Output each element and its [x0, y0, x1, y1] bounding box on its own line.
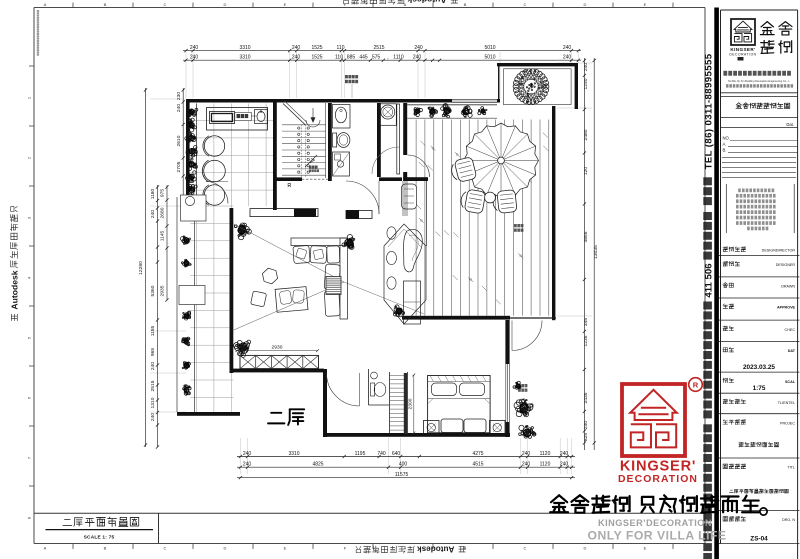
svg-text:240: 240 — [292, 55, 301, 61]
svg-text:13035: 13035 — [593, 245, 599, 259]
svg-text:411 506: 411 506 — [703, 263, 714, 297]
svg-text:NO.: NO. — [723, 136, 730, 141]
svg-text:1235: 1235 — [583, 335, 589, 346]
svg-text:2680: 2680 — [159, 207, 165, 218]
svg-text:110: 110 — [335, 55, 343, 61]
svg-text:Autodesk: Autodesk — [9, 270, 19, 309]
svg-text:KINGSER': KINGSER' — [620, 459, 696, 475]
svg-text:1120: 1120 — [540, 451, 551, 457]
svg-text:A: A — [44, 546, 47, 551]
svg-text:240: 240 — [150, 362, 156, 370]
svg-text:740: 740 — [377, 451, 386, 457]
svg-text:KINGSER': KINGSER' — [730, 47, 755, 52]
svg-text:1:75: 1:75 — [753, 385, 766, 392]
svg-text:1525: 1525 — [311, 55, 322, 61]
svg-text:4825: 4825 — [312, 462, 323, 468]
svg-text:240: 240 — [190, 55, 199, 61]
svg-text:No.Bei Jin Xin Building Decora: No.Bei Jin Xin Building Decoration Engin… — [728, 79, 790, 83]
svg-text:1110: 1110 — [393, 55, 404, 61]
svg-text:DAT: DAT — [788, 349, 796, 353]
svg-text:C: C — [524, 2, 527, 7]
svg-text:1310: 1310 — [150, 397, 156, 408]
svg-text:B: B — [464, 2, 467, 7]
svg-text:120: 120 — [583, 167, 589, 175]
svg-text:825: 825 — [583, 433, 589, 441]
svg-text:2935: 2935 — [159, 285, 165, 296]
svg-text:D: D — [224, 546, 227, 551]
svg-text:2480: 2480 — [583, 129, 589, 140]
svg-text:3310: 3310 — [239, 45, 250, 51]
svg-text:DECORATION: DECORATION — [618, 474, 698, 485]
svg-text:110: 110 — [337, 45, 345, 51]
svg-text:240: 240 — [414, 45, 423, 51]
svg-text:240: 240 — [522, 451, 531, 457]
svg-text:240: 240 — [190, 45, 199, 51]
svg-text:C: C — [164, 2, 167, 7]
svg-text:Autodesk: Autodesk — [407, 0, 446, 5]
svg-text:TITL: TITL — [787, 466, 795, 470]
svg-text:CHEC: CHEC — [785, 328, 796, 332]
svg-text:TLIENTEL: TLIENTEL — [778, 401, 795, 405]
svg-text:240: 240 — [563, 45, 572, 51]
svg-text:B.: B. — [723, 148, 727, 153]
svg-text:E: E — [644, 546, 647, 551]
svg-text:3310: 3310 — [288, 451, 299, 457]
svg-text:DECORATION: DECORATION — [729, 53, 756, 57]
svg-text:575: 575 — [372, 55, 381, 61]
svg-text:5010: 5010 — [484, 45, 495, 51]
svg-text:1180: 1180 — [150, 188, 156, 199]
svg-text:4515: 4515 — [472, 462, 483, 468]
svg-text:240: 240 — [560, 462, 569, 468]
svg-text:4275: 4275 — [472, 451, 483, 457]
svg-text:C: C — [524, 546, 527, 551]
svg-text:240: 240 — [292, 45, 301, 51]
svg-text:Dat.: Dat. — [786, 122, 794, 127]
svg-text:975: 975 — [159, 189, 165, 197]
svg-text:TEL (86) 0311-88995555: TEL (86) 0311-88995555 — [703, 53, 714, 169]
svg-text:1145: 1145 — [159, 230, 165, 241]
svg-text:2515: 2515 — [150, 380, 156, 391]
svg-text:E: E — [644, 2, 647, 7]
svg-text:D: D — [584, 2, 587, 7]
svg-text:C: C — [164, 546, 167, 551]
svg-text:D: D — [584, 546, 587, 551]
svg-text:2435: 2435 — [583, 392, 589, 403]
svg-text:2300: 2300 — [408, 398, 414, 409]
svg-text:240: 240 — [522, 462, 531, 468]
svg-text:2705: 2705 — [176, 161, 182, 172]
svg-text:1195: 1195 — [355, 451, 366, 457]
svg-text:230: 230 — [176, 92, 182, 100]
svg-text:SCAL: SCAL — [785, 380, 796, 384]
svg-text:KINGSER'DECORATION: KINGSER'DECORATION — [598, 518, 712, 528]
svg-text:965: 965 — [150, 348, 156, 356]
svg-text:240: 240 — [150, 210, 156, 218]
svg-text:1240: 1240 — [583, 78, 589, 89]
svg-text:2610: 2610 — [176, 135, 182, 146]
svg-text:5360: 5360 — [150, 285, 156, 296]
svg-text:1120: 1120 — [540, 462, 551, 468]
svg-text:3310: 3310 — [239, 55, 250, 61]
svg-text:2515: 2515 — [373, 45, 384, 51]
svg-text:11575: 11575 — [395, 472, 409, 478]
svg-text:ONLY FOR VILLA LIFE: ONLY FOR VILLA LIFE — [587, 529, 726, 543]
svg-text:APPROVE: APPROVE — [777, 306, 796, 310]
svg-text:B: B — [104, 2, 107, 7]
svg-text:B: B — [104, 546, 107, 551]
svg-text:DRG. N: DRG. N — [782, 518, 795, 522]
svg-text:640: 640 — [392, 451, 401, 457]
svg-text:240: 240 — [413, 55, 422, 61]
svg-text:1525: 1525 — [311, 45, 322, 51]
svg-text:345: 345 — [583, 318, 589, 326]
svg-text:DESIGNDIRECTOR: DESIGNDIRECTOR — [762, 249, 796, 253]
svg-text:SCALE 1: 75: SCALE 1: 75 — [84, 535, 115, 541]
svg-text:240: 240 — [176, 104, 182, 112]
svg-text:1155: 1155 — [150, 325, 156, 336]
svg-text:240: 240 — [243, 462, 252, 468]
svg-text:240: 240 — [583, 63, 589, 71]
svg-text:,: , — [387, 55, 388, 61]
svg-text:E: E — [284, 2, 287, 7]
svg-text:DESIGNER: DESIGNER — [776, 263, 796, 267]
svg-text:240: 240 — [150, 413, 156, 421]
svg-text:DRAWN: DRAWN — [781, 285, 795, 289]
svg-text:A.: A. — [723, 142, 727, 147]
svg-text:E: E — [284, 546, 287, 551]
svg-text:240: 240 — [563, 55, 572, 61]
svg-text:885: 885 — [347, 55, 356, 61]
svg-text:400: 400 — [399, 462, 408, 468]
svg-text:D: D — [224, 2, 227, 7]
svg-text:240: 240 — [583, 421, 589, 429]
svg-text:2930: 2930 — [272, 345, 283, 351]
svg-text:240: 240 — [243, 451, 252, 457]
svg-text:Autodesk: Autodesk — [417, 544, 455, 553]
svg-text:R: R — [693, 381, 699, 390]
svg-text:5010: 5010 — [484, 55, 495, 61]
svg-text:4855: 4855 — [583, 231, 589, 242]
svg-text:240: 240 — [560, 451, 569, 457]
svg-text:445: 445 — [359, 55, 368, 61]
svg-text:ZS-04: ZS-04 — [750, 535, 768, 542]
svg-text:A: A — [44, 2, 47, 7]
svg-text:PROJEC: PROJEC — [780, 421, 795, 425]
svg-text:12280: 12280 — [138, 261, 144, 275]
svg-text:2023.03.25: 2023.03.25 — [743, 364, 775, 371]
